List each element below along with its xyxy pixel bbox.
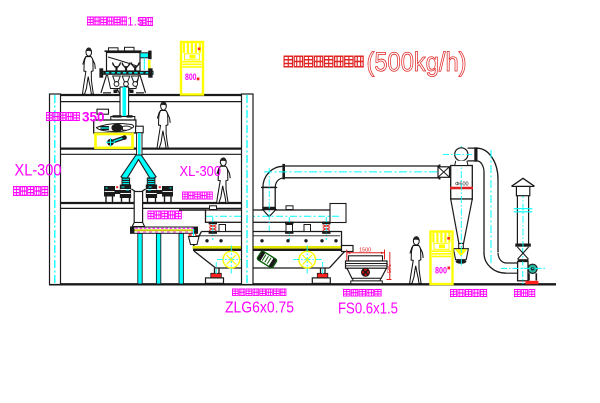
svg-text:XL-300: XL-300 <box>180 163 222 180</box>
svg-text:FS0.6x1.5: FS0.6x1.5 <box>338 301 398 318</box>
svg-text:XL-300: XL-300 <box>15 162 62 180</box>
svg-text:ZLG6x0.75: ZLG6x0.75 <box>225 300 294 317</box>
svg-text:1500: 1500 <box>359 248 371 254</box>
svg-text:800: 800 <box>435 266 447 276</box>
svg-text:Φ600: Φ600 <box>455 182 469 188</box>
svg-text:1.5: 1.5 <box>127 15 144 29</box>
svg-text:350: 350 <box>82 110 105 125</box>
svg-text:800: 800 <box>185 72 197 82</box>
svg-text:(500kg/h): (500kg/h) <box>367 47 467 77</box>
